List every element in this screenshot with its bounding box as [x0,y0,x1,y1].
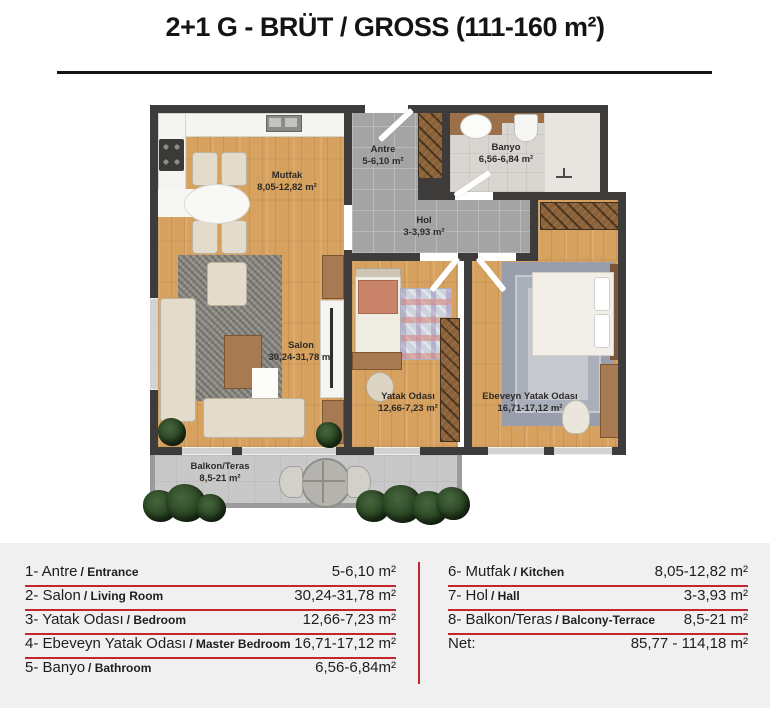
armchair [207,262,247,306]
legend-room-name: 6- Mutfak [448,563,511,580]
room-name: Hol [364,215,484,227]
legend-row-master-bedroom: 4- Ebeveyn Yatak Odası/ Master Bedroom 1… [25,633,396,659]
living-hall-opening [344,205,352,250]
room-label-kitchen: Mutfak 8,05-12,82 m² [227,170,347,193]
coffee-table-tray [252,368,278,398]
legend-room-name: 7- Hol [448,587,488,604]
legend-row-living-room: 2- Salon/ Living Room 30,24-31,78 m² [25,585,396,611]
room-area: 5-6,10 m² [345,156,421,168]
room-name: Salon [241,340,361,352]
room-name: Antre [345,144,421,156]
legend-room-name-en: / Living Room [84,589,163,603]
legend-row-balcony: 8- Balkon/Teras/ Balcony-Terrace 8,5-21 … [448,609,748,635]
room-label-master-bedroom: Ebeveyn Yatak Odası 16,71-17,12 m² [460,391,600,414]
wall [464,253,472,455]
wall [530,200,538,261]
legend-room-area: 8,5-21 m² [684,611,748,628]
legend-divider [418,562,420,684]
window [374,447,420,455]
wall [600,105,608,200]
legend-room-name: 4- Ebeveyn Yatak Odası [25,635,186,652]
legend-room-area: 12,66-7,23 m² [303,611,396,628]
bedroom-wardrobe [440,318,460,442]
legend-room-name: 3- Yatak Odası [25,611,124,628]
window [182,447,232,455]
room-area: 30,24-31,78 m² [241,352,361,364]
room-label-bedroom: Yatak Odası 12,66-7,23 m² [348,391,468,414]
pillow [594,314,610,348]
wall [150,105,158,455]
legend-row-net: Net: 85,77 - 114,18 m² [448,633,748,657]
dining-chair [192,220,218,254]
room-name: Yatak Odası [348,391,468,403]
legend-row-bedroom: 3- Yatak Odası/ Bedroom 12,66-7,23 m² [25,609,396,635]
room-area: 8,5-21 m² [160,473,280,485]
window [242,447,336,455]
balcony-table [301,458,351,508]
title-divider [57,71,712,74]
plant [196,494,226,522]
legend-room-area: 30,24-31,78 m² [294,587,396,604]
room-name: Banyo [446,142,566,154]
room-name: Mutfak [227,170,347,182]
room-label-entrance: Antre 5-6,10 m² [345,144,421,167]
room-label-balcony: Balkon/Teras 8,5-21 m² [160,461,280,484]
legend-room-name-en: / Balcony-Terrace [555,613,655,627]
pillow [594,277,610,311]
dining-chair [221,220,247,254]
room-area: 6,56-6,84 m² [446,154,566,166]
master-wardrobe [540,202,620,230]
legend-room-name: 5- Banyo [25,659,85,676]
window [554,447,612,455]
wall [618,192,626,455]
balcony-table-detail [322,461,324,503]
shower-armature-icon [563,168,565,178]
legend-room-name-en: / Master Bedroom [189,637,290,651]
toilet [514,114,538,142]
stove [159,139,184,171]
room-area: 3-3,93 m² [364,227,484,239]
room-label-living-room: Salon 30,24-31,78 m² [241,340,361,363]
window [488,447,544,455]
sofa-left [160,298,196,422]
legend-row-kitchen: 6- Mutfak/ Kitchen 8,05-12,82 m² [448,561,748,587]
legend-room-area: 8,05-12,82 m² [655,563,748,580]
page-title: 2+1 G - BRÜT / GROSS (111-160 m²) [0,12,770,43]
legend-room-name: 8- Balkon/Teras [448,611,552,628]
dining-chair [192,152,218,186]
legend-row-entrance: 1- Antre/ Entrance 5-6,10 m² [25,561,396,587]
plant [158,418,186,446]
kitchen-counter-top [158,113,346,137]
room-area: 16,71-17,12 m² [460,403,600,415]
sideboard-top [322,255,344,299]
room-area: 8,05-12,82 m² [227,182,347,194]
kitchen-sink-basin-right [285,118,297,127]
sofa-bottom [203,398,305,438]
kitchen-sink-basin-left [269,118,281,127]
room-label-bathroom: Banyo 6,56-6,84 m² [446,142,566,165]
legend-room-name: 2- Salon [25,587,81,604]
master-bedroom-dresser [600,364,620,438]
balcony-table-detail [303,480,345,482]
balcony-chair [279,466,303,498]
legend-room-area: 16,71-17,12 m² [294,635,396,652]
legend-room-name: 1- Antre [25,563,78,580]
legend-room-name-en: / Bathroom [88,661,151,675]
room-label-hall: Hol 3-3,93 m² [364,215,484,238]
window [150,298,158,390]
legend-row-bathroom: 5- Banyo/ Bathroom 6,56-6,84m² [25,657,396,681]
room-name: Ebeveyn Yatak Odası [460,391,600,403]
legend-room-area: 3-3,93 m² [684,587,748,604]
legend-room-name-en: / Hall [491,589,520,603]
bathroom-sink [460,114,492,139]
net-label: Net: [448,635,476,652]
entrance-door-opening [365,105,408,113]
net-area: 85,77 - 114,18 m² [631,635,748,652]
legend-room-area: 6,56-6,84m² [315,659,396,676]
legend-room-name-en: / Kitchen [514,565,565,579]
room-name: Balkon/Teras [160,461,280,473]
floor-plan-page: 2+1 G - BRÜT / GROSS (111-160 m²) [0,0,770,708]
legend-room-name-en: / Entrance [81,565,139,579]
legend-room-area: 5-6,10 m² [332,563,396,580]
legend-room-name-en: / Bedroom [127,613,186,627]
plant [316,422,342,448]
entrance-wardrobe [418,108,444,180]
single-bed-blanket [358,280,398,314]
plant [436,487,470,520]
room-area: 12,66-7,23 m² [348,403,468,415]
legend-row-hall: 7- Hol/ Hall 3-3,93 m² [448,585,748,611]
